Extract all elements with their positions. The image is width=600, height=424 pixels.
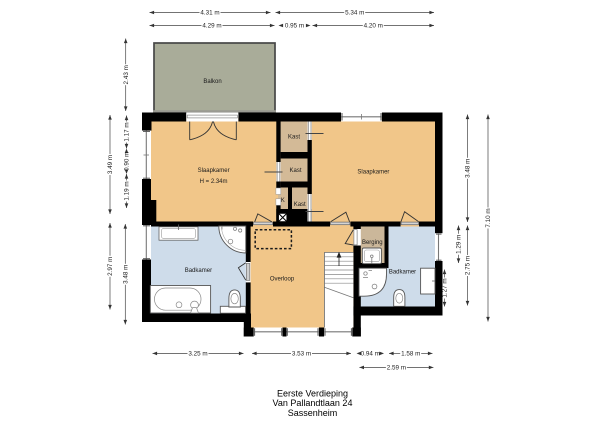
svg-text:5.34 m: 5.34 m <box>345 10 364 17</box>
svg-text:Balkon: Balkon <box>203 79 221 85</box>
svg-text:Eerste Verdieping: Eerste Verdieping <box>277 388 348 398</box>
svg-text:Berging: Berging <box>362 240 383 246</box>
svg-text:1.27 m: 1.27 m <box>442 278 449 297</box>
svg-text:Kast: Kast <box>294 202 306 208</box>
svg-text:1.17 m: 1.17 m <box>124 122 131 141</box>
svg-text:Kast: Kast <box>288 135 300 141</box>
svg-text:Sassenheim: Sassenheim <box>288 408 338 418</box>
svg-text:3.48 m: 3.48 m <box>123 265 130 284</box>
svg-text:4.20 m: 4.20 m <box>364 23 383 30</box>
svg-text:2.75 m: 2.75 m <box>465 256 472 275</box>
svg-text:Van Pallandtlaan 24: Van Pallandtlaan 24 <box>273 398 353 408</box>
svg-text:H = 2.34m: H = 2.34m <box>200 179 228 185</box>
svg-text:2.97 m: 2.97 m <box>107 257 114 276</box>
svg-text:Kast: Kast <box>289 168 301 174</box>
svg-text:3.48 m: 3.48 m <box>465 159 472 178</box>
svg-text:Slaapkamer: Slaapkamer <box>198 168 230 174</box>
svg-text:0.90 m: 0.90 m <box>124 152 131 171</box>
svg-text:3.53 m: 3.53 m <box>292 351 311 358</box>
svg-text:4.29 m: 4.29 m <box>202 23 221 30</box>
svg-text:1.29 m: 1.29 m <box>456 235 463 254</box>
svg-text:K: K <box>281 198 285 204</box>
svg-text:2.59 m: 2.59 m <box>387 365 406 372</box>
svg-text:1.58 m: 1.58 m <box>401 351 420 358</box>
svg-text:Overloop: Overloop <box>270 277 295 283</box>
svg-text:4.31 m: 4.31 m <box>200 10 219 17</box>
svg-text:0.94 m: 0.94 m <box>361 351 380 358</box>
svg-text:0.95 m: 0.95 m <box>285 23 304 30</box>
svg-text:1.19 m: 1.19 m <box>124 181 131 200</box>
svg-text:Badkamer: Badkamer <box>389 270 416 276</box>
svg-text:Slaapkamer: Slaapkamer <box>357 169 389 175</box>
svg-text:3.25 m: 3.25 m <box>188 351 207 358</box>
svg-text:3.49 m: 3.49 m <box>107 155 114 174</box>
svg-text:7.10 m: 7.10 m <box>485 208 492 227</box>
svg-text:2.43 m: 2.43 m <box>123 65 130 84</box>
svg-text:Badkamer: Badkamer <box>185 268 212 274</box>
